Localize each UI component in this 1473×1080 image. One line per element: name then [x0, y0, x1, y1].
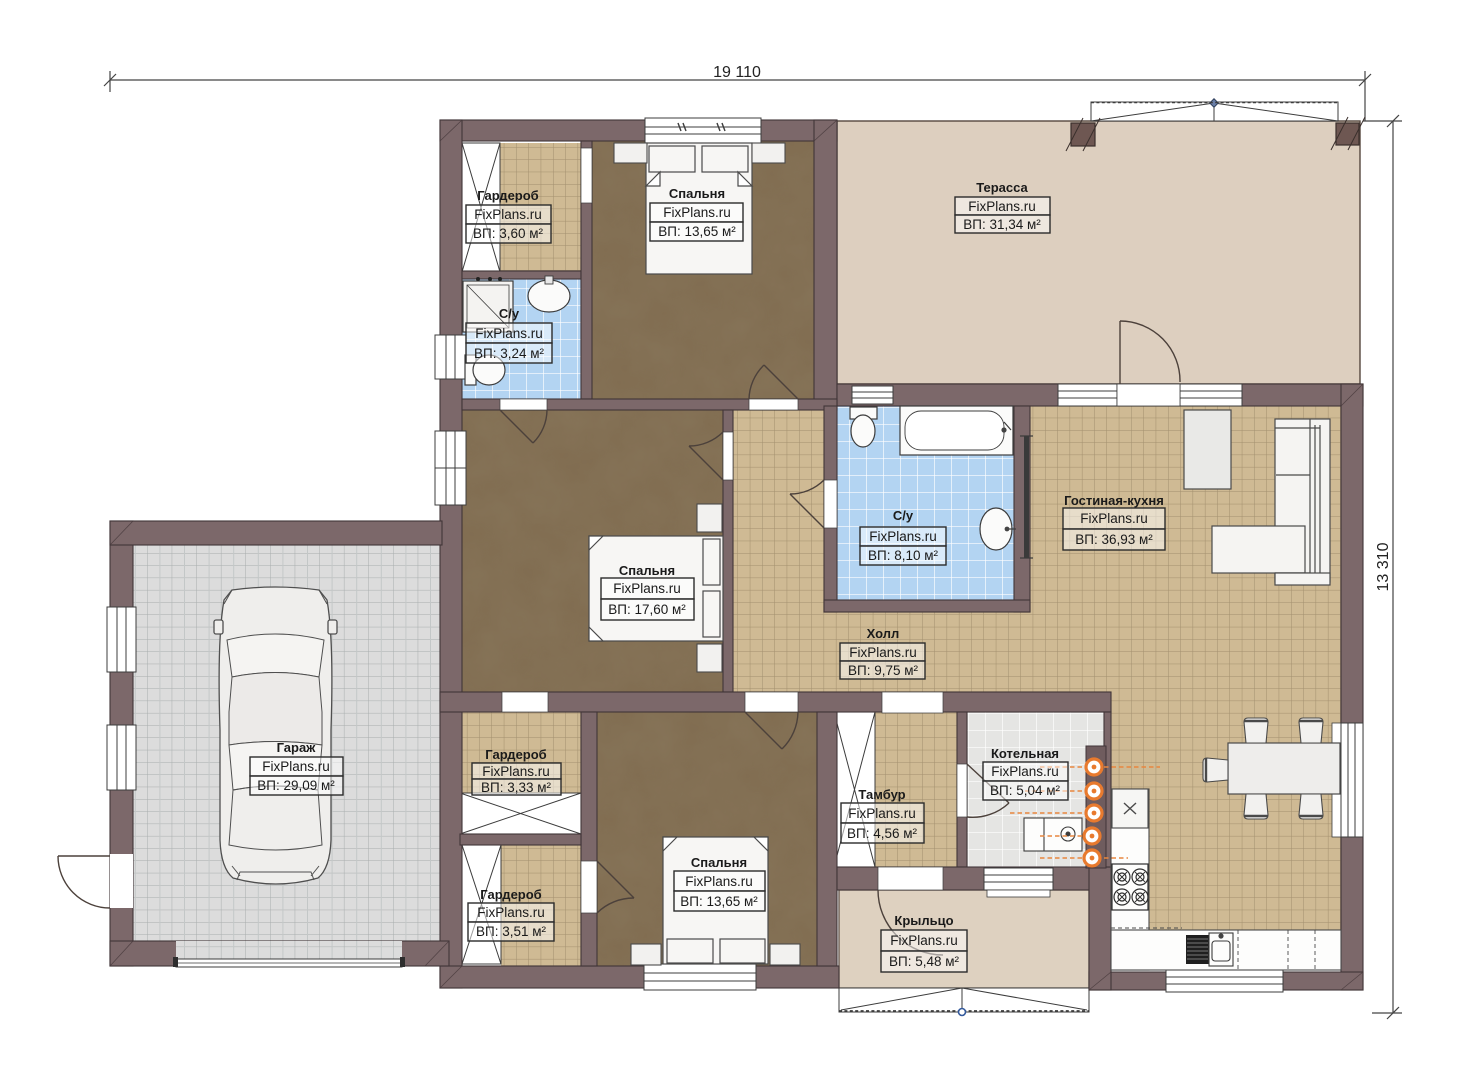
svg-text:ВП: 3,60 м²: ВП: 3,60 м² — [473, 226, 544, 241]
svg-text:ВП: 5,04 м²: ВП: 5,04 м² — [990, 783, 1061, 798]
svg-text:ВП: 9,75 м²: ВП: 9,75 м² — [848, 663, 919, 678]
svg-text:ВП: 17,60 м²: ВП: 17,60 м² — [608, 602, 686, 617]
svg-text:FixPlans.ru: FixPlans.ru — [474, 207, 542, 222]
svg-text:ВП: 5,48 м²: ВП: 5,48 м² — [889, 954, 960, 969]
svg-text:С/у: С/у — [893, 508, 914, 523]
svg-text:FixPlans.ru: FixPlans.ru — [685, 874, 753, 889]
svg-text:Тамбур: Тамбур — [858, 787, 905, 802]
svg-text:ВП: 3,24 м²: ВП: 3,24 м² — [474, 346, 545, 361]
svg-text:Гостиная-кухня: Гостиная-кухня — [1064, 493, 1164, 508]
svg-text:ВП: 3,33 м²: ВП: 3,33 м² — [481, 780, 552, 795]
svg-text:ВП: 31,34 м²: ВП: 31,34 м² — [963, 217, 1041, 232]
svg-text:С/у: С/у — [499, 306, 520, 321]
svg-text:FixPlans.ru: FixPlans.ru — [848, 806, 916, 821]
svg-text:FixPlans.ru: FixPlans.ru — [262, 759, 330, 774]
svg-text:FixPlans.ru: FixPlans.ru — [613, 581, 681, 596]
svg-text:ВП: 36,93 м²: ВП: 36,93 м² — [1075, 532, 1153, 547]
svg-text:Крыльцо: Крыльцо — [894, 913, 953, 928]
svg-text:FixPlans.ru: FixPlans.ru — [968, 199, 1036, 214]
svg-text:ВП: 29,09 м²: ВП: 29,09 м² — [257, 778, 335, 793]
svg-text:FixPlans.ru: FixPlans.ru — [849, 645, 917, 660]
svg-text:13 310: 13 310 — [1375, 542, 1392, 591]
svg-text:Терасса: Терасса — [976, 180, 1028, 195]
svg-text:Спальня: Спальня — [691, 855, 747, 870]
svg-text:FixPlans.ru: FixPlans.ru — [475, 326, 543, 341]
svg-text:FixPlans.ru: FixPlans.ru — [991, 764, 1059, 779]
svg-text:ВП: 13,65 м²: ВП: 13,65 м² — [658, 224, 736, 239]
svg-text:Спальня: Спальня — [619, 563, 675, 578]
svg-text:FixPlans.ru: FixPlans.ru — [890, 933, 958, 948]
svg-text:ВП: 4,56 м²: ВП: 4,56 м² — [847, 826, 918, 841]
svg-text:FixPlans.ru: FixPlans.ru — [869, 529, 937, 544]
svg-text:ВП: 3,51 м²: ВП: 3,51 м² — [476, 924, 547, 939]
svg-text:ВП: 8,10 м²: ВП: 8,10 м² — [868, 548, 939, 563]
svg-text:Гардероб: Гардероб — [477, 188, 538, 203]
svg-text:FixPlans.ru: FixPlans.ru — [477, 905, 545, 920]
svg-text:FixPlans.ru: FixPlans.ru — [1080, 511, 1148, 526]
svg-text:FixPlans.ru: FixPlans.ru — [663, 205, 731, 220]
svg-text:FixPlans.ru: FixPlans.ru — [482, 764, 550, 779]
svg-text:Гардероб: Гардероб — [480, 887, 541, 902]
svg-text:19 110: 19 110 — [713, 64, 761, 81]
svg-text:ВП: 13,65 м²: ВП: 13,65 м² — [680, 894, 758, 909]
svg-text:Котельная: Котельная — [991, 746, 1059, 761]
svg-text:Гараж: Гараж — [277, 740, 317, 755]
svg-text:Гардероб: Гардероб — [485, 747, 546, 762]
svg-text:Спальня: Спальня — [669, 186, 725, 201]
svg-text:Холл: Холл — [867, 626, 900, 641]
